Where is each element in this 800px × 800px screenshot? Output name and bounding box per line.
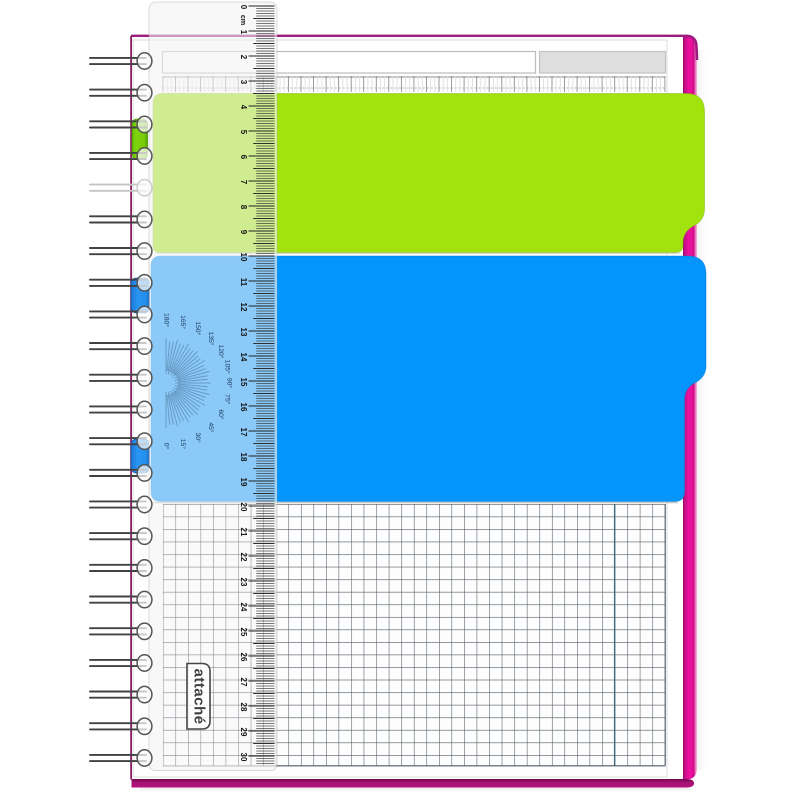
svg-text:26: 26 [239, 653, 248, 662]
svg-text:22: 22 [239, 553, 248, 562]
svg-text:attaché: attaché [190, 669, 207, 725]
svg-text:8: 8 [239, 205, 248, 210]
svg-text:30: 30 [239, 753, 248, 762]
svg-text:14: 14 [239, 353, 248, 362]
svg-text:0: 0 [239, 5, 248, 10]
svg-text:30°: 30° [194, 432, 202, 443]
svg-text:19: 19 [239, 478, 248, 487]
svg-text:29: 29 [239, 728, 248, 737]
svg-text:10: 10 [239, 253, 248, 262]
svg-text:135°: 135° [207, 331, 215, 345]
svg-text:90°: 90° [226, 378, 234, 389]
svg-text:20: 20 [239, 503, 248, 512]
svg-text:120°: 120° [217, 344, 225, 358]
svg-text:75°: 75° [223, 394, 231, 405]
svg-text:7: 7 [239, 180, 248, 185]
svg-text:165°: 165° [179, 315, 187, 329]
svg-text:28: 28 [239, 703, 248, 712]
svg-text:23: 23 [239, 578, 248, 587]
svg-text:15°: 15° [179, 439, 187, 450]
svg-text:4: 4 [239, 105, 248, 110]
svg-text:12: 12 [239, 303, 248, 312]
svg-text:180°: 180° [163, 313, 171, 327]
svg-text:15: 15 [239, 378, 248, 387]
svg-text:18: 18 [239, 453, 248, 462]
svg-text:150°: 150° [194, 321, 202, 335]
svg-text:25: 25 [239, 628, 248, 637]
svg-text:0°: 0° [163, 443, 171, 450]
svg-text:13: 13 [239, 328, 248, 337]
svg-text:45°: 45° [207, 422, 215, 433]
svg-text:24: 24 [239, 603, 248, 612]
svg-text:1: 1 [239, 30, 248, 35]
svg-text:21: 21 [239, 528, 248, 537]
svg-text:17: 17 [239, 428, 248, 437]
svg-text:16: 16 [239, 403, 248, 412]
svg-text:11: 11 [239, 278, 248, 287]
svg-text:9: 9 [239, 230, 248, 235]
svg-text:6: 6 [239, 155, 248, 160]
svg-text:3: 3 [239, 80, 248, 85]
svg-text:105°: 105° [223, 360, 231, 374]
svg-text:27: 27 [239, 678, 248, 687]
svg-text:5: 5 [239, 130, 248, 135]
svg-text:2: 2 [239, 55, 248, 60]
svg-text:cm: cm [239, 15, 248, 25]
svg-text:60°: 60° [217, 409, 225, 420]
